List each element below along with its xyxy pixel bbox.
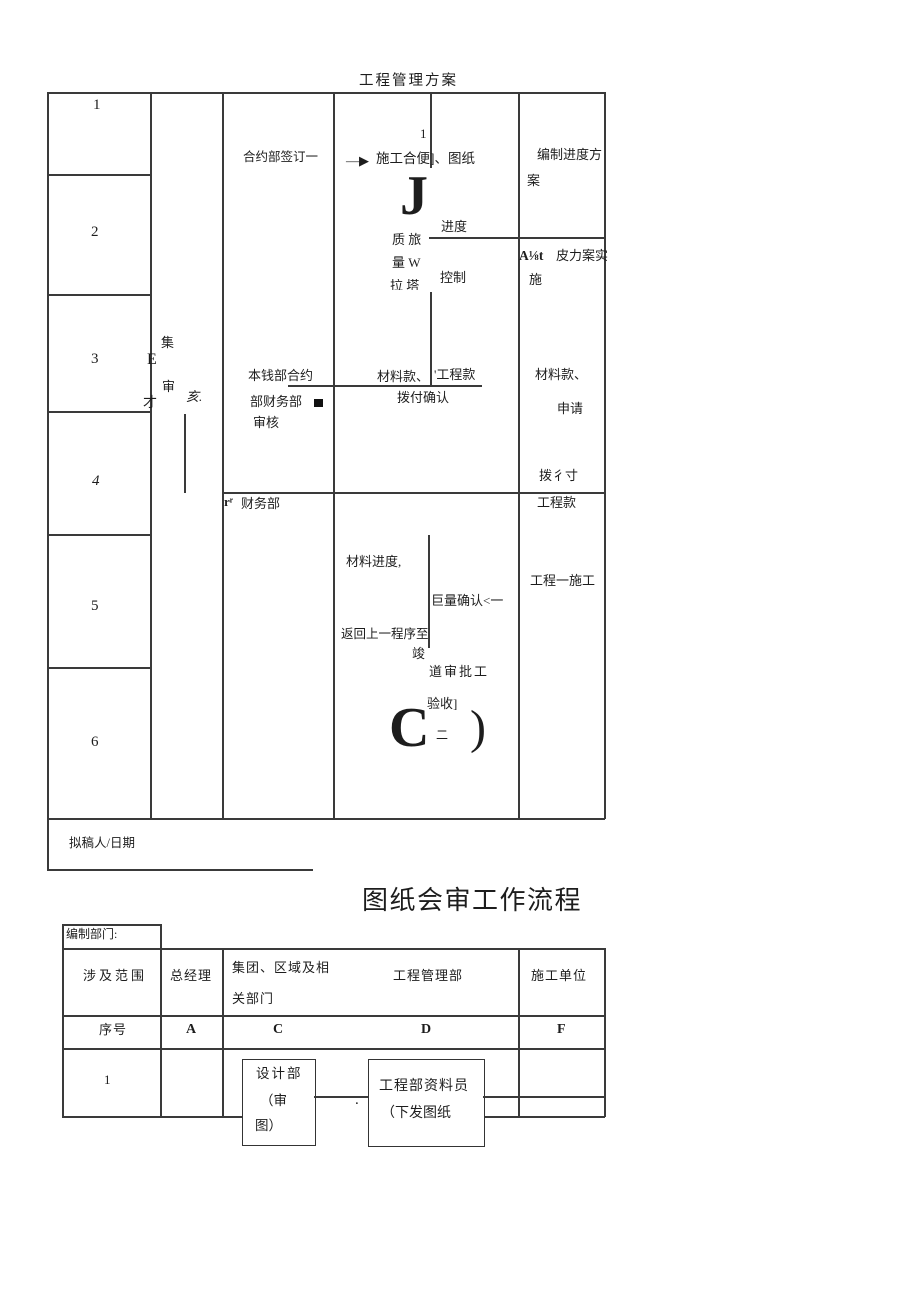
review-char-cai: 才 xyxy=(143,396,157,412)
t2-dept-cell-right xyxy=(160,924,162,950)
t1-finance-row-line xyxy=(222,492,605,494)
approve-line-3: 审核 xyxy=(253,416,279,431)
allocate-label: 拨彳寸 xyxy=(539,469,578,484)
t1-row-number: 2 xyxy=(91,224,99,241)
t2-row1-bottom-right-segment xyxy=(483,1116,605,1118)
t1-col-divider-4 xyxy=(518,92,520,819)
flow-vertical-text-3: 拉 塔 xyxy=(390,279,419,290)
page-title-project-management: 工程管理方案 xyxy=(359,73,458,90)
t2-seq-label: 序号 xyxy=(99,1023,127,1038)
flow-line-middle xyxy=(430,292,432,386)
flow-jun-char: 竣 xyxy=(412,647,425,662)
t2-box-connector-line xyxy=(314,1096,368,1098)
t2-row1-bottom-left-segment xyxy=(62,1116,242,1118)
t1-col-divider-2 xyxy=(222,92,224,819)
flow-project-payment: '工程款 xyxy=(434,368,475,383)
flow-progress-label: 进度 xyxy=(441,220,467,235)
t2-small-dot-mark: . xyxy=(355,1092,359,1109)
flow-glyph-er: 二 xyxy=(436,729,448,743)
t2-header-gm: 总经理 xyxy=(170,969,212,984)
t1-row-number: 5 xyxy=(91,598,99,615)
t1-right-col-split-line xyxy=(429,237,605,239)
schedule-plan-line2: 案 xyxy=(527,174,540,189)
scanned-document-page: 工程管理方案 1 2 3 4 5 6 集 E 审 才 亥. 合约部签订一 本钱部… xyxy=(0,0,920,1301)
t2-header-bottom-line xyxy=(62,1015,605,1017)
plan-implement-line1: 皮力案实 xyxy=(556,249,608,264)
flow-control-label: 控制 xyxy=(440,271,466,286)
apply-label: 申请 xyxy=(557,402,583,417)
approve-line-1: 本钱部合约 xyxy=(248,369,313,384)
t2-letter-c: C xyxy=(273,1022,283,1038)
project-archivist-box xyxy=(368,1059,485,1147)
t2-header-contractor: 施工单位 xyxy=(531,969,587,984)
review-char-shen: 审 xyxy=(162,380,175,395)
flow-payment-confirm: 拨付确认 xyxy=(397,391,449,406)
flow-glyph-j: J xyxy=(400,168,428,224)
design-dept-box-line2: （审 xyxy=(260,1093,287,1109)
t2-col-divider-2 xyxy=(222,948,224,1117)
plan-implement-prefix: A⅛t xyxy=(519,248,543,264)
review-flow-line xyxy=(184,414,186,493)
t1-border-bottom xyxy=(47,818,605,820)
t1-row-number: 4 xyxy=(92,473,100,490)
t1-row-divider-5 xyxy=(47,667,150,669)
t2-letter-row-bottom-line xyxy=(62,1048,605,1050)
t1-payment-underline xyxy=(288,385,482,387)
t2-header-pm-dept: 工程管理部 xyxy=(393,969,463,984)
t1-row-divider-1 xyxy=(47,174,150,176)
t1-row-divider-4 xyxy=(47,534,150,536)
t1-row-divider-2 xyxy=(47,294,150,296)
flow-acceptance-approve: 道审批工 xyxy=(429,665,489,680)
design-dept-box-line3: 图） xyxy=(255,1118,282,1134)
t2-dept-cell-top xyxy=(62,924,160,926)
review-char-e: E xyxy=(147,351,157,369)
t2-row-number: 1 xyxy=(104,1073,111,1088)
flow-quantity-confirm: 巨量确认<一 xyxy=(431,594,503,609)
contract-sign-label: 合约部签订一 xyxy=(243,150,318,164)
t1-footer-strip-left xyxy=(47,818,49,871)
finance-dept-prefix: rʳ xyxy=(224,495,233,510)
t1-footer-strip-bottom xyxy=(47,869,313,871)
t2-header-scope: 涉及范围 xyxy=(83,969,147,984)
t2-letter-d: D xyxy=(421,1022,431,1038)
archivist-box-line2: （下发图纸 xyxy=(381,1106,451,1122)
flow-material-payment: 材料款、 xyxy=(377,370,429,385)
review-char-ji: 集 xyxy=(161,336,174,351)
flow-vertical-text-1: 质 旅 xyxy=(392,233,421,248)
flow-vertical-text-2: 量 W xyxy=(392,256,421,271)
material-payment-label: 材料款、 xyxy=(535,368,587,383)
flow-material-progress: 材料进度, xyxy=(346,555,401,570)
flow-acceptance-label: 验收] xyxy=(427,697,457,712)
t1-border-top xyxy=(47,92,605,94)
t1-row-divider-3 xyxy=(47,411,150,413)
flow-return-previous-step: 返回上一程序至 xyxy=(341,627,429,641)
project-funds-label: 工程款 xyxy=(537,496,576,511)
flow-arrow-icon: —▶ xyxy=(346,154,369,169)
t2-letter-f: F xyxy=(557,1022,566,1038)
t2-right-connector-line xyxy=(483,1096,605,1098)
flow-number-1: 1 xyxy=(420,127,427,142)
finance-dept-label: 财务部 xyxy=(241,497,280,512)
t2-header-group-line2: 关部门 xyxy=(232,992,274,1007)
flow-glyph-c: C xyxy=(389,700,429,756)
drafter-date-label: 拟稿人/日期 xyxy=(69,836,135,850)
t2-col-divider-3 xyxy=(518,948,520,1117)
t1-col-divider-3 xyxy=(333,92,335,819)
dept-cell-label: 编制部门: xyxy=(66,928,117,942)
t2-border-top xyxy=(62,948,605,950)
filled-square-marker xyxy=(314,399,323,407)
t1-col-divider-1 xyxy=(150,92,152,819)
project-construction-label: 工程一施工 xyxy=(530,574,595,589)
t2-letter-a: A xyxy=(186,1022,196,1038)
approve-line-2: 部财务部 xyxy=(250,395,302,410)
t1-border-left xyxy=(47,92,49,871)
t1-row-number: 6 xyxy=(91,734,99,751)
schedule-plan-line1: 编制进度方 xyxy=(537,148,602,163)
page-title-drawing-review: 图纸会审工作流程 xyxy=(362,886,582,916)
t2-header-group-line1: 集团、区域及相 xyxy=(232,961,330,976)
t1-row-number: 1 xyxy=(93,97,101,114)
flow-glyph-paren: ) xyxy=(470,704,486,752)
t2-col-divider-1 xyxy=(160,948,162,1117)
t1-border-right xyxy=(604,92,606,819)
t1-row-number: 3 xyxy=(91,351,99,368)
archivist-box-line1: 工程部资料员 xyxy=(379,1079,469,1095)
design-dept-box-line1: 设计部 xyxy=(256,1066,303,1082)
plan-implement-line2: 施 xyxy=(529,273,542,288)
review-char-hai: 亥. xyxy=(186,390,202,405)
t2-border-right xyxy=(604,948,606,1117)
t2-border-left xyxy=(62,924,64,1117)
